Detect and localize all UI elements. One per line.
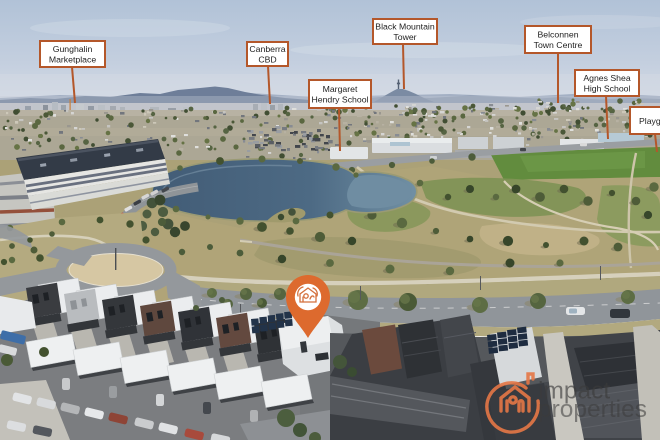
svg-text:Black Mountain: Black Mountain: [375, 21, 435, 31]
svg-text:Belconnen: Belconnen: [537, 30, 578, 40]
svg-text:Hendry School: Hendry School: [312, 95, 369, 105]
svg-text:Playground: Playground: [639, 116, 660, 126]
svg-text:CBD: CBD: [258, 55, 276, 65]
svg-text:Town Centre: Town Centre: [534, 40, 583, 50]
svg-text:Canberra: Canberra: [249, 44, 285, 54]
svg-text:Marketplace: Marketplace: [49, 55, 96, 65]
svg-text:Gunghalin: Gunghalin: [53, 44, 93, 54]
svg-text:Agnes Shea: Agnes Shea: [583, 73, 631, 83]
svg-text:Tower: Tower: [393, 32, 416, 42]
svg-text:Margaret: Margaret: [323, 84, 358, 94]
svg-text:properties: properties: [538, 396, 647, 423]
svg-text:High School: High School: [584, 84, 631, 94]
